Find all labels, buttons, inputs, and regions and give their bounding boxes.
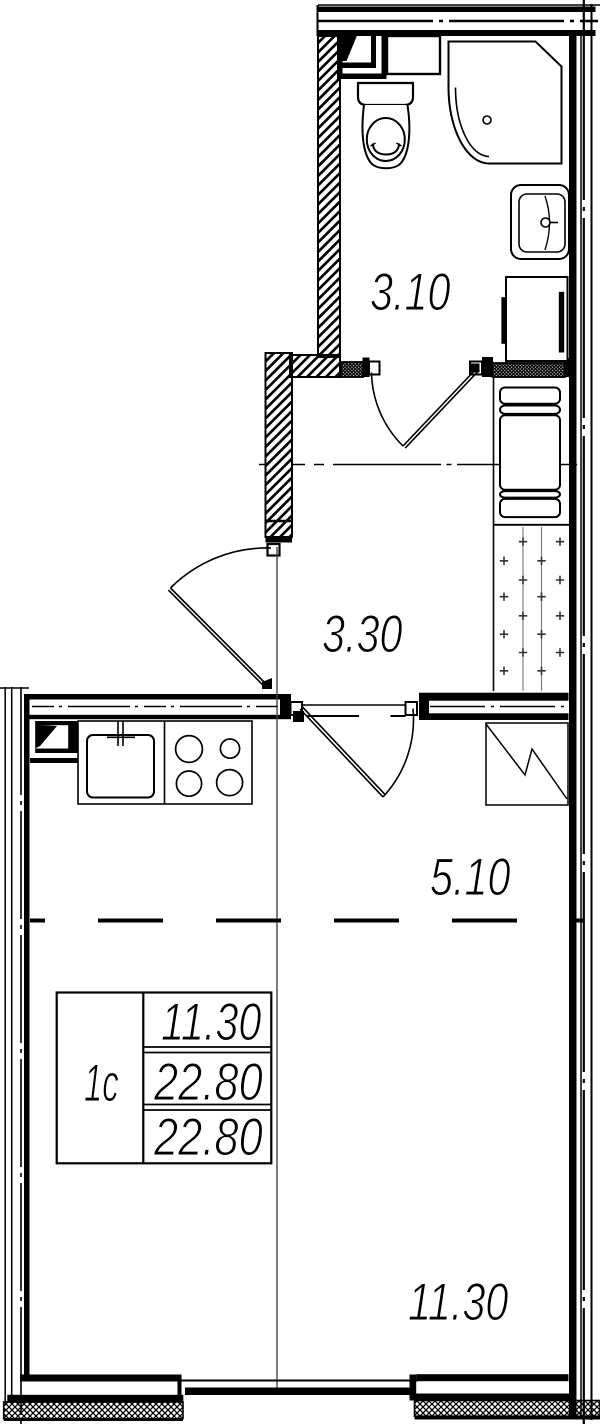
- svg-text:3.30: 3.30: [322, 605, 403, 664]
- svg-text:11.30: 11.30: [161, 993, 262, 1052]
- svg-text:22.80: 22.80: [153, 1053, 263, 1112]
- svg-text:5.10: 5.10: [430, 848, 511, 907]
- svg-text:22.80: 22.80: [153, 1108, 263, 1167]
- svg-text:11.30: 11.30: [408, 1273, 509, 1332]
- svg-text:3.10: 3.10: [370, 263, 451, 322]
- svg-text:1с: 1с: [84, 1054, 119, 1113]
